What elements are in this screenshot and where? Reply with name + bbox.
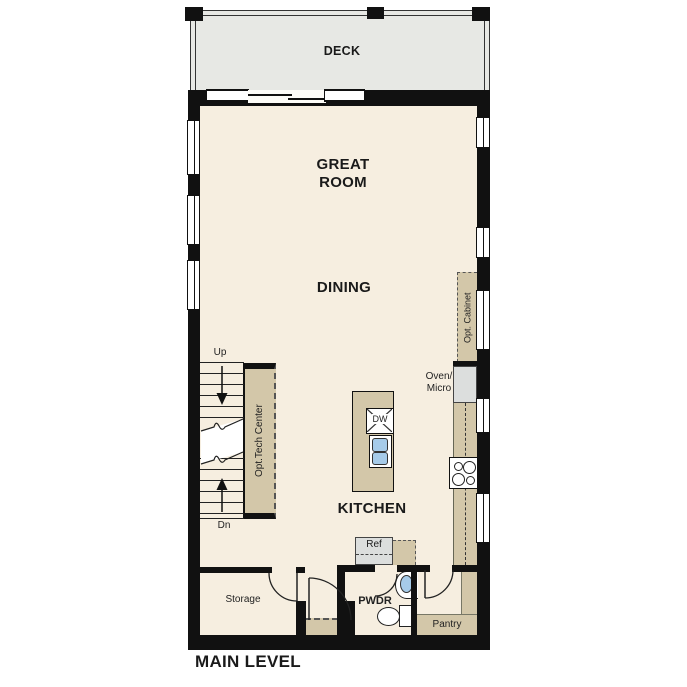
entry-left-jamb bbox=[296, 601, 306, 640]
cooktop-fixture bbox=[449, 457, 478, 489]
exterior-wall-right bbox=[477, 97, 490, 650]
great-room-label: GREAT ROOM bbox=[293, 156, 393, 192]
storage-top-wall bbox=[188, 567, 272, 573]
sliding-door bbox=[248, 90, 326, 103]
burner-icon bbox=[466, 476, 475, 485]
window bbox=[476, 398, 490, 433]
island-sink-fixture bbox=[369, 435, 392, 468]
plan-title: MAIN LEVEL bbox=[195, 652, 301, 672]
refrigerator: Ref bbox=[355, 537, 393, 565]
window bbox=[324, 89, 365, 102]
oven-micro-label: Oven/ Micro bbox=[421, 371, 457, 395]
dishwasher-symbol: DW bbox=[366, 408, 394, 434]
window bbox=[476, 117, 490, 148]
window bbox=[206, 89, 249, 102]
opt-cabinet: Opt. Cabinet bbox=[457, 272, 477, 362]
deck-label: DECK bbox=[292, 44, 392, 58]
ref-dashed-line bbox=[356, 554, 392, 555]
stair-tread bbox=[200, 502, 244, 503]
stair-tread bbox=[200, 469, 244, 470]
stairs-down-label: Dn bbox=[209, 520, 239, 531]
counter-bottom-wall-stub bbox=[452, 565, 478, 572]
sink-basin bbox=[372, 438, 388, 452]
stair-tread bbox=[200, 513, 244, 514]
stair-tread bbox=[200, 480, 244, 481]
opt-cabinet-label: Opt. Cabinet bbox=[458, 273, 477, 362]
pantry-label: Pantry bbox=[417, 619, 477, 630]
storage-door-jamb bbox=[296, 567, 305, 573]
slider-panel bbox=[248, 94, 292, 96]
stair-tread bbox=[200, 491, 244, 492]
refrigerator-label: Ref bbox=[356, 539, 392, 550]
kitchen-label: KITCHEN bbox=[322, 500, 422, 517]
window bbox=[187, 195, 200, 245]
burner-icon bbox=[463, 461, 476, 474]
storage-label: Storage bbox=[210, 594, 276, 605]
dining-label: DINING bbox=[294, 279, 394, 296]
stair-tread bbox=[200, 373, 244, 374]
stair-tread bbox=[200, 417, 244, 418]
floor-plan: DECK Opt.Tech Center Opt. Cabinet Oven/ … bbox=[0, 0, 687, 687]
opt-tech-center: Opt.Tech Center bbox=[243, 363, 276, 519]
powder-left-wall bbox=[337, 565, 345, 640]
stair-tread bbox=[200, 518, 244, 519]
stair-tread bbox=[200, 384, 244, 385]
burner-icon bbox=[452, 473, 465, 486]
powder-label: PWDR bbox=[352, 595, 398, 607]
slider-panel bbox=[288, 98, 326, 100]
stair-tread bbox=[200, 458, 244, 459]
stair-tread bbox=[200, 362, 244, 363]
sink-basin bbox=[372, 452, 388, 465]
window bbox=[476, 493, 490, 543]
deck-post-left bbox=[185, 7, 203, 21]
powder-right-wall bbox=[411, 565, 417, 637]
deck-post-right bbox=[472, 7, 490, 21]
pantry-shelf-bottom: Pantry bbox=[417, 614, 477, 637]
stair-tread bbox=[200, 395, 244, 396]
window bbox=[476, 290, 490, 350]
window bbox=[187, 120, 200, 175]
stairs-up-label: Up bbox=[205, 347, 235, 358]
dishwasher-label: DW bbox=[367, 414, 393, 424]
ref-side-counter bbox=[393, 540, 416, 565]
toilet-bowl bbox=[377, 607, 400, 626]
opt-tech-center-label: Opt.Tech Center bbox=[245, 369, 274, 513]
window bbox=[187, 260, 200, 310]
stair-tread bbox=[200, 406, 244, 407]
deck-post-middle bbox=[367, 7, 384, 19]
window bbox=[476, 227, 490, 258]
burner-icon bbox=[454, 462, 463, 471]
